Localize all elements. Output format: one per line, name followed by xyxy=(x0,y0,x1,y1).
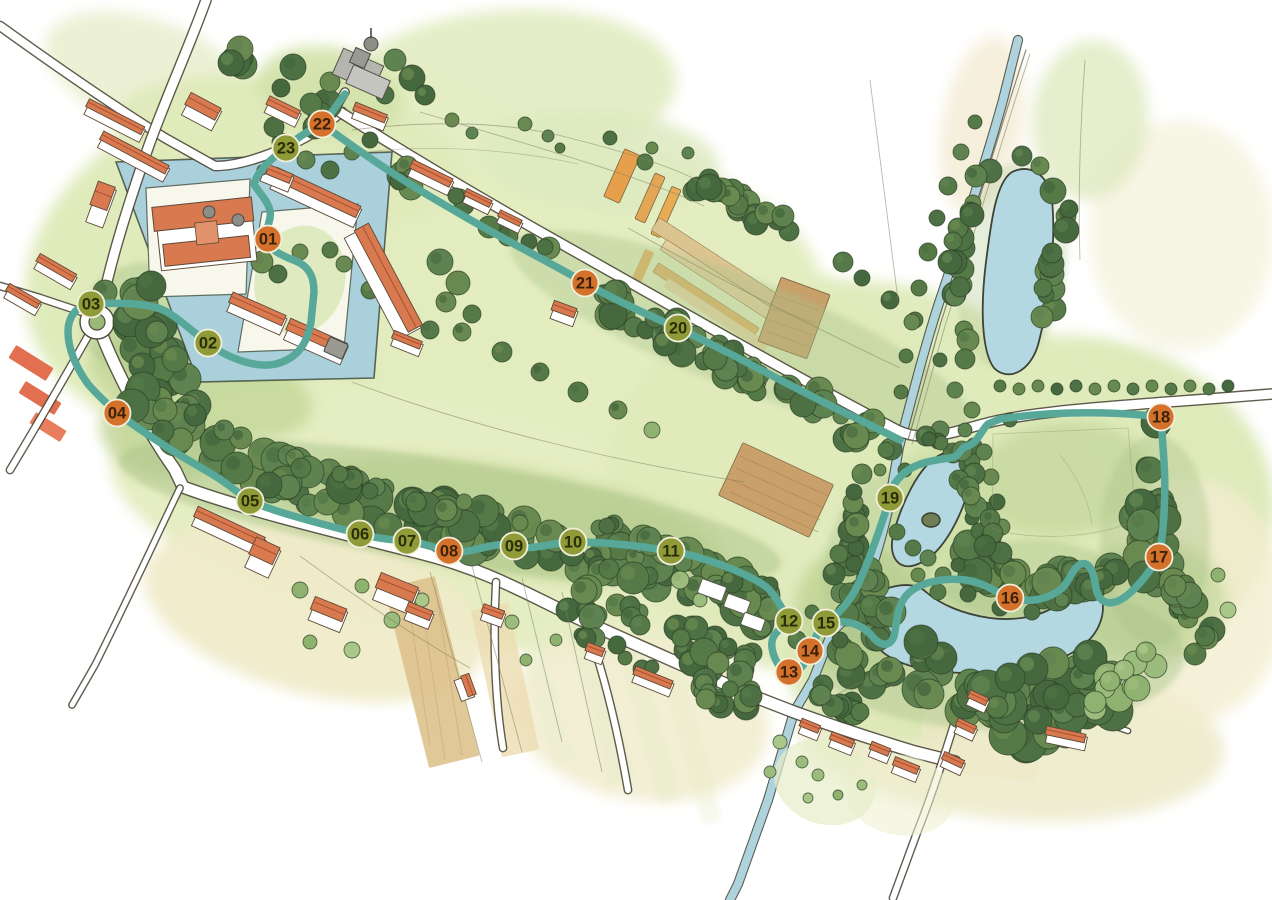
svg-text:02: 02 xyxy=(199,335,217,353)
svg-text:04: 04 xyxy=(108,405,127,423)
svg-text:01: 01 xyxy=(259,231,277,249)
svg-text:10: 10 xyxy=(564,534,582,552)
svg-text:16: 16 xyxy=(1001,590,1019,608)
svg-text:14: 14 xyxy=(801,643,820,661)
svg-text:15: 15 xyxy=(817,615,835,633)
svg-text:05: 05 xyxy=(241,493,259,511)
svg-text:23: 23 xyxy=(277,140,295,158)
svg-text:09: 09 xyxy=(505,538,523,556)
svg-text:08: 08 xyxy=(440,543,458,561)
svg-text:18: 18 xyxy=(1152,409,1170,427)
svg-text:19: 19 xyxy=(881,490,899,508)
svg-text:03: 03 xyxy=(82,296,100,314)
svg-text:13: 13 xyxy=(780,664,798,682)
svg-text:06: 06 xyxy=(351,526,369,544)
svg-text:17: 17 xyxy=(1150,549,1168,567)
svg-text:07: 07 xyxy=(398,533,416,551)
svg-text:21: 21 xyxy=(576,275,594,293)
svg-text:11: 11 xyxy=(662,543,679,561)
svg-text:12: 12 xyxy=(780,613,798,631)
svg-text:22: 22 xyxy=(313,116,331,134)
svg-text:20: 20 xyxy=(669,320,687,338)
